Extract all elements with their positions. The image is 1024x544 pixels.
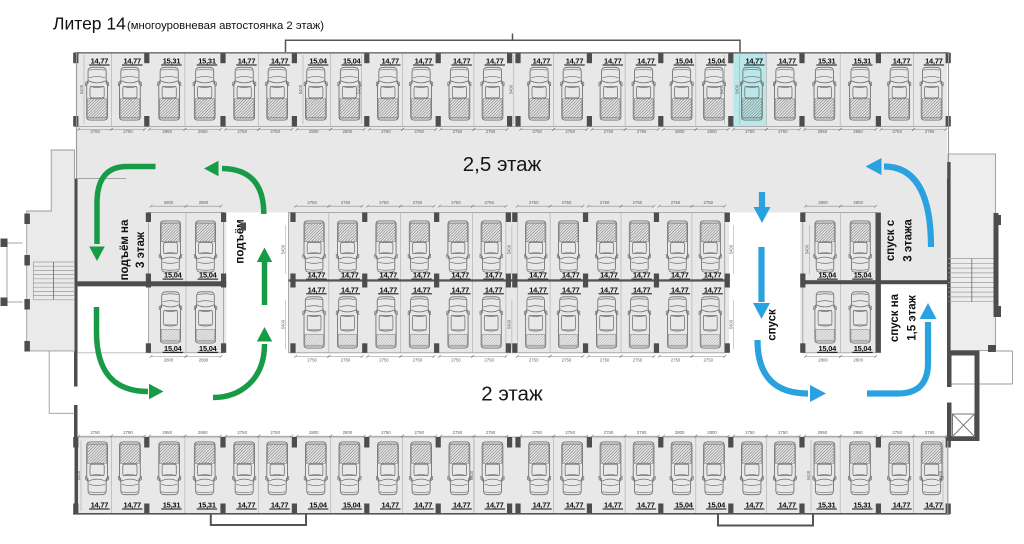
svg-text:5400: 5400: [734, 84, 739, 94]
svg-text:(многоуровневая автостоянка 2: (многоуровневая автостоянка 2 этаж): [127, 20, 324, 32]
svg-text:2950: 2950: [198, 129, 208, 134]
svg-text:14,77: 14,77: [341, 285, 359, 294]
svg-text:14,77: 14,77: [486, 501, 504, 510]
svg-text:2790: 2790: [123, 430, 133, 435]
svg-text:14,77: 14,77: [238, 57, 256, 66]
svg-text:2800: 2800: [818, 357, 828, 362]
svg-text:2750: 2750: [600, 200, 610, 205]
svg-text:2750: 2750: [484, 357, 494, 362]
svg-text:2750: 2750: [341, 200, 351, 205]
svg-text:2800: 2800: [199, 357, 209, 362]
svg-text:2800: 2800: [309, 129, 319, 134]
svg-text:15,04: 15,04: [164, 344, 183, 353]
svg-text:5400: 5400: [356, 84, 361, 94]
svg-text:2,5 этаж: 2,5 этаж: [463, 153, 542, 176]
svg-text:14,77: 14,77: [91, 501, 109, 510]
svg-text:14,77: 14,77: [745, 501, 763, 510]
svg-text:2750: 2750: [604, 430, 614, 435]
svg-text:14,77: 14,77: [380, 285, 398, 294]
svg-text:2950: 2950: [162, 430, 172, 435]
svg-text:14,77: 14,77: [453, 57, 471, 66]
svg-text:3 этажа: 3 этажа: [903, 219, 915, 262]
svg-text:14,77: 14,77: [91, 57, 109, 66]
svg-text:2750: 2750: [451, 200, 461, 205]
svg-text:2750: 2750: [604, 129, 614, 134]
svg-text:14,77: 14,77: [893, 501, 911, 510]
svg-text:2750: 2750: [90, 430, 100, 435]
svg-text:2750: 2750: [704, 200, 714, 205]
svg-text:2750: 2750: [270, 129, 280, 134]
svg-text:2800: 2800: [164, 200, 174, 205]
svg-text:2750: 2750: [486, 430, 496, 435]
svg-text:спуск: спуск: [767, 309, 779, 341]
svg-text:14,77: 14,77: [415, 501, 433, 510]
svg-text:14,77: 14,77: [533, 57, 551, 66]
svg-text:15,31: 15,31: [198, 57, 216, 66]
svg-text:2750: 2750: [633, 200, 643, 205]
svg-text:2750: 2750: [637, 430, 647, 435]
svg-text:2750: 2750: [453, 129, 463, 134]
svg-text:14,77: 14,77: [271, 57, 289, 66]
svg-text:5400: 5400: [507, 319, 512, 329]
svg-text:2750: 2750: [532, 129, 542, 134]
svg-text:5400: 5400: [298, 84, 303, 94]
svg-text:2750: 2750: [341, 357, 351, 362]
svg-text:2750: 2750: [565, 129, 575, 134]
svg-text:2750: 2750: [90, 129, 100, 134]
svg-text:спуск на: спуск на: [889, 293, 901, 342]
svg-text:2950: 2950: [162, 129, 172, 134]
svg-text:14,77: 14,77: [486, 57, 504, 66]
svg-text:2800: 2800: [675, 129, 685, 134]
svg-text:2750: 2750: [413, 200, 423, 205]
svg-text:14,77: 14,77: [925, 57, 943, 66]
svg-text:14,77: 14,77: [123, 501, 141, 510]
svg-text:2950: 2950: [853, 129, 863, 134]
svg-text:14,77: 14,77: [637, 57, 655, 66]
svg-text:2750: 2750: [892, 430, 902, 435]
svg-text:5400: 5400: [728, 319, 733, 329]
svg-text:2800: 2800: [343, 430, 353, 435]
svg-text:2750: 2750: [381, 430, 391, 435]
svg-text:14,77: 14,77: [925, 501, 943, 510]
svg-text:14,77: 14,77: [238, 501, 256, 510]
svg-text:15,04: 15,04: [675, 501, 694, 510]
svg-text:14,77: 14,77: [381, 501, 399, 510]
svg-text:14,77: 14,77: [123, 57, 141, 66]
svg-text:2800: 2800: [199, 200, 209, 205]
svg-text:15,04: 15,04: [675, 57, 694, 66]
svg-text:2750: 2750: [484, 200, 494, 205]
svg-text:5400: 5400: [469, 470, 474, 480]
svg-text:2750: 2750: [381, 129, 391, 134]
svg-text:15,31: 15,31: [163, 57, 181, 66]
svg-text:15,31: 15,31: [818, 501, 836, 510]
svg-text:14,77: 14,77: [413, 285, 431, 294]
svg-text:5400: 5400: [280, 244, 285, 254]
svg-text:2750: 2750: [237, 430, 247, 435]
svg-text:2750: 2750: [892, 129, 902, 134]
svg-text:5400: 5400: [804, 244, 809, 254]
svg-text:2750: 2750: [379, 357, 389, 362]
svg-text:Литер 14: Литер 14: [53, 14, 126, 34]
svg-text:2750: 2750: [600, 357, 610, 362]
svg-text:14,77: 14,77: [452, 285, 470, 294]
svg-text:2750: 2750: [745, 430, 755, 435]
svg-text:14,77: 14,77: [671, 285, 689, 294]
svg-text:3 этаж: 3 этаж: [135, 231, 147, 268]
svg-text:2800: 2800: [675, 430, 685, 435]
svg-text:15,04: 15,04: [343, 57, 362, 66]
svg-text:15,04: 15,04: [343, 501, 362, 510]
svg-text:2750: 2750: [778, 129, 788, 134]
svg-text:2800: 2800: [818, 200, 828, 205]
svg-text:5400: 5400: [79, 84, 84, 94]
svg-text:2800: 2800: [309, 430, 319, 435]
svg-text:15,04: 15,04: [199, 344, 218, 353]
svg-text:14,77: 14,77: [566, 57, 584, 66]
svg-text:2750: 2750: [925, 129, 935, 134]
svg-text:14,77: 14,77: [271, 501, 289, 510]
svg-text:2750: 2750: [379, 200, 389, 205]
svg-text:14,77: 14,77: [893, 57, 911, 66]
svg-text:14,77: 14,77: [604, 57, 622, 66]
svg-text:2950: 2950: [818, 430, 828, 435]
svg-text:2750: 2750: [307, 357, 317, 362]
svg-text:5400: 5400: [728, 244, 733, 254]
svg-text:14,77: 14,77: [453, 501, 471, 510]
svg-text:2800: 2800: [707, 430, 717, 435]
svg-text:спуск с: спуск с: [885, 219, 897, 261]
svg-text:2750: 2750: [565, 430, 575, 435]
svg-text:1,5 этаж: 1,5 этаж: [907, 294, 919, 340]
svg-text:14,77: 14,77: [415, 57, 433, 66]
svg-text:2950: 2950: [818, 129, 828, 134]
svg-text:2950: 2950: [198, 430, 208, 435]
svg-text:14,77: 14,77: [381, 57, 399, 66]
svg-text:14,77: 14,77: [778, 57, 796, 66]
svg-text:14,77: 14,77: [485, 285, 503, 294]
svg-text:2750: 2750: [451, 357, 461, 362]
svg-text:2750: 2750: [671, 357, 681, 362]
svg-text:14,77: 14,77: [308, 285, 326, 294]
svg-text:15,31: 15,31: [198, 501, 216, 510]
svg-text:15,04: 15,04: [708, 57, 727, 66]
svg-text:2750: 2750: [562, 200, 572, 205]
svg-text:15,04: 15,04: [708, 501, 727, 510]
svg-text:15,04: 15,04: [819, 344, 838, 353]
svg-text:5400: 5400: [507, 244, 512, 254]
svg-text:2750: 2750: [413, 357, 423, 362]
svg-text:14,77: 14,77: [633, 285, 651, 294]
svg-text:2750: 2750: [307, 200, 317, 205]
svg-text:2800: 2800: [853, 357, 863, 362]
svg-text:2750: 2750: [704, 357, 714, 362]
svg-text:15,31: 15,31: [818, 57, 836, 66]
svg-text:2750: 2750: [562, 357, 572, 362]
svg-text:2950: 2950: [853, 430, 863, 435]
svg-text:2750: 2750: [745, 129, 755, 134]
svg-text:14,77: 14,77: [637, 501, 655, 510]
svg-text:2750: 2750: [925, 430, 935, 435]
svg-text:2750: 2750: [414, 430, 424, 435]
svg-text:15,31: 15,31: [163, 501, 181, 510]
svg-text:15,31: 15,31: [854, 57, 872, 66]
svg-text:2800: 2800: [707, 129, 717, 134]
svg-text:2750: 2750: [671, 200, 681, 205]
svg-text:2750: 2750: [486, 129, 496, 134]
svg-text:5400: 5400: [938, 470, 943, 480]
svg-text:2750: 2750: [270, 430, 280, 435]
svg-text:14,77: 14,77: [533, 501, 551, 510]
svg-text:2750: 2750: [237, 129, 247, 134]
svg-text:14,77: 14,77: [529, 285, 547, 294]
svg-text:14,77: 14,77: [704, 285, 722, 294]
svg-text:2750: 2750: [532, 430, 542, 435]
svg-text:5400: 5400: [719, 84, 724, 94]
svg-text:2800: 2800: [343, 129, 353, 134]
svg-text:2750: 2750: [633, 357, 643, 362]
svg-text:подъём на: подъём на: [119, 219, 131, 280]
svg-text:14,77: 14,77: [600, 285, 618, 294]
svg-text:2750: 2750: [529, 357, 539, 362]
svg-text:5400: 5400: [280, 319, 285, 329]
svg-text:2750: 2750: [529, 200, 539, 205]
svg-text:14,77: 14,77: [745, 57, 763, 66]
svg-text:5400: 5400: [509, 84, 514, 94]
svg-text:2790: 2790: [123, 129, 133, 134]
svg-text:2 этаж: 2 этаж: [481, 383, 543, 406]
svg-text:2750: 2750: [637, 129, 647, 134]
svg-text:15,31: 15,31: [854, 501, 872, 510]
svg-text:14,77: 14,77: [778, 501, 796, 510]
svg-text:5400: 5400: [806, 470, 811, 480]
svg-text:2750: 2750: [414, 129, 424, 134]
svg-text:15,04: 15,04: [309, 57, 328, 66]
svg-text:14,77: 14,77: [562, 285, 580, 294]
svg-text:2750: 2750: [778, 430, 788, 435]
svg-text:2800: 2800: [853, 200, 863, 205]
svg-text:15,04: 15,04: [854, 344, 873, 353]
svg-text:14,77: 14,77: [566, 501, 584, 510]
svg-text:15,04: 15,04: [309, 501, 328, 510]
svg-text:2750: 2750: [453, 430, 463, 435]
svg-text:14,77: 14,77: [604, 501, 622, 510]
svg-text:2800: 2800: [164, 357, 174, 362]
